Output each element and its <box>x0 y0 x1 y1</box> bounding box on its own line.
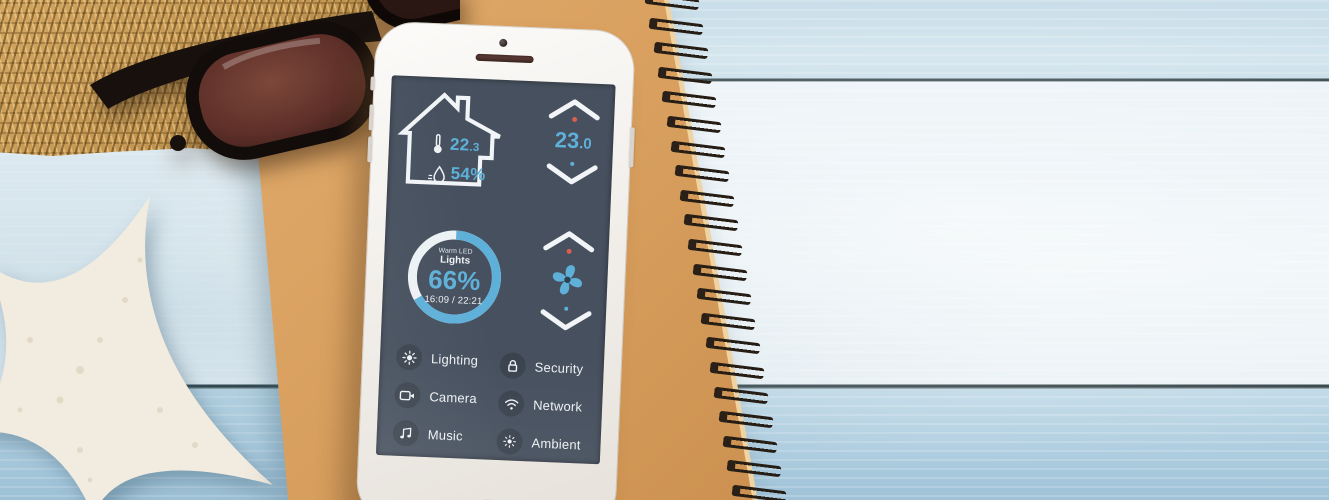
spiral-wire-loop <box>696 288 751 305</box>
spiral-wire-loop <box>675 165 730 182</box>
music-label: Music <box>428 427 464 443</box>
photo-scene: 22.3 54% 23.0 <box>0 0 1329 500</box>
spiral-wire-loop <box>718 411 773 428</box>
fan-icon[interactable] <box>546 258 590 302</box>
front-camera <box>499 39 507 47</box>
lighting-button[interactable]: Lighting <box>396 344 479 373</box>
video-camera-icon <box>394 382 421 409</box>
mute-switch[interactable] <box>370 76 375 90</box>
camera-button[interactable]: Camera <box>394 382 477 411</box>
spiral-wire-loop <box>692 263 747 280</box>
network-label: Network <box>533 397 583 414</box>
volume-down-button[interactable] <box>367 136 372 162</box>
earpiece-speaker <box>476 54 534 63</box>
smart-home-app-screen: 22.3 54% 23.0 <box>376 75 616 464</box>
smartphone: 22.3 54% 23.0 <box>355 21 636 500</box>
spiral-wire-loop <box>658 67 713 84</box>
thermostat-control: 23.0 <box>539 96 607 189</box>
light-bulb-icon <box>396 344 423 371</box>
spiral-wire-loop <box>670 140 725 157</box>
spiral-wire-loop <box>662 91 717 108</box>
setpoint-temperature: 23.0 <box>554 129 592 153</box>
ambient-label: Ambient <box>531 435 581 452</box>
spiral-wire-loop <box>683 214 738 231</box>
humidity-drop-icon <box>427 163 446 183</box>
ambient-button[interactable]: Ambient <box>496 428 581 457</box>
spiral-wire-loop <box>649 17 704 34</box>
thermometer-icon <box>431 133 446 155</box>
spiral-wire-loop <box>688 239 743 256</box>
lock-icon <box>499 352 526 379</box>
indoor-temp-value: 22 <box>450 134 470 154</box>
spiral-wire-loop <box>679 190 734 207</box>
spiral-wire-loop <box>714 386 769 403</box>
spiral-wire-loop <box>645 0 700 10</box>
music-button[interactable]: Music <box>392 420 463 449</box>
sun-icon <box>496 428 523 455</box>
lights-percent: 66% <box>428 265 481 296</box>
security-label: Security <box>534 359 583 376</box>
lights-progress-ring: Warm LED Lights 66% 16:09 / 22:21 <box>402 223 506 331</box>
fan-down-icon[interactable] <box>537 308 594 334</box>
temperature-down-icon[interactable] <box>543 162 600 188</box>
wifi-icon <box>498 390 525 417</box>
spiral-wire-loop <box>701 313 756 330</box>
spiral-wire-loop <box>709 362 764 379</box>
indoor-humidity: 54% <box>427 163 486 185</box>
spiral-wire-loop <box>731 485 786 500</box>
spiral-wire-loop <box>722 436 777 453</box>
spiral-wire-loop <box>705 337 760 354</box>
volume-up-button[interactable] <box>369 104 374 130</box>
heating-indicator-dot <box>572 117 577 122</box>
spiral-wire-loop <box>727 460 782 477</box>
fan-control <box>533 227 601 334</box>
security-button[interactable]: Security <box>499 352 584 381</box>
spiral-wire-loop <box>653 42 708 59</box>
fan-up-indicator-dot <box>566 249 571 254</box>
camera-label: Camera <box>429 389 477 406</box>
lights-schedule: 16:09 / 22:21 <box>424 294 482 307</box>
spiral-wire-loop <box>666 116 721 133</box>
indoor-temperature: 22.3 <box>431 133 481 156</box>
music-notes-icon <box>392 420 419 447</box>
network-button[interactable]: Network <box>498 390 583 419</box>
humidity-value: 54% <box>450 164 486 185</box>
indoor-temp-decimal: .3 <box>469 141 480 153</box>
lighting-label: Lighting <box>431 351 479 368</box>
